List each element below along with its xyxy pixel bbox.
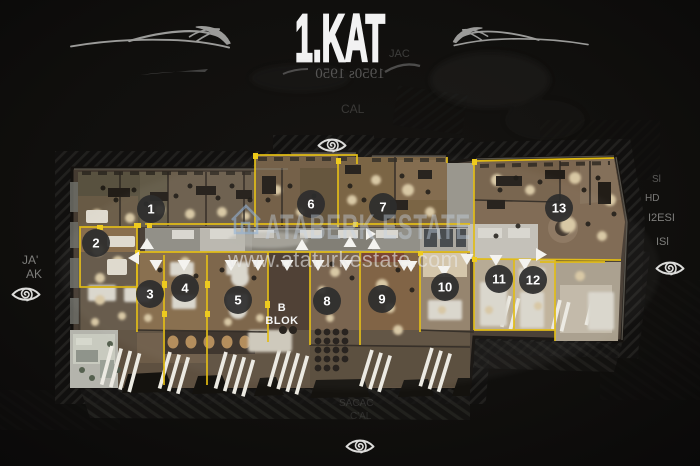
svg-text:C'AL: C'AL <box>350 411 372 422</box>
svg-text:CAL: CAL <box>341 102 365 116</box>
svg-text:AK: AK <box>26 267 42 281</box>
svg-text:JA': JA' <box>22 253 38 267</box>
svg-text:Sl: Sl <box>652 174 661 185</box>
svg-text:HD: HD <box>645 193 659 204</box>
svg-text:ISl: ISl <box>656 236 669 248</box>
svg-text:SACAC: SACAC <box>339 398 373 409</box>
svg-text:I2ESI: I2ESI <box>648 212 675 224</box>
svg-text:JAC: JAC <box>389 48 410 60</box>
